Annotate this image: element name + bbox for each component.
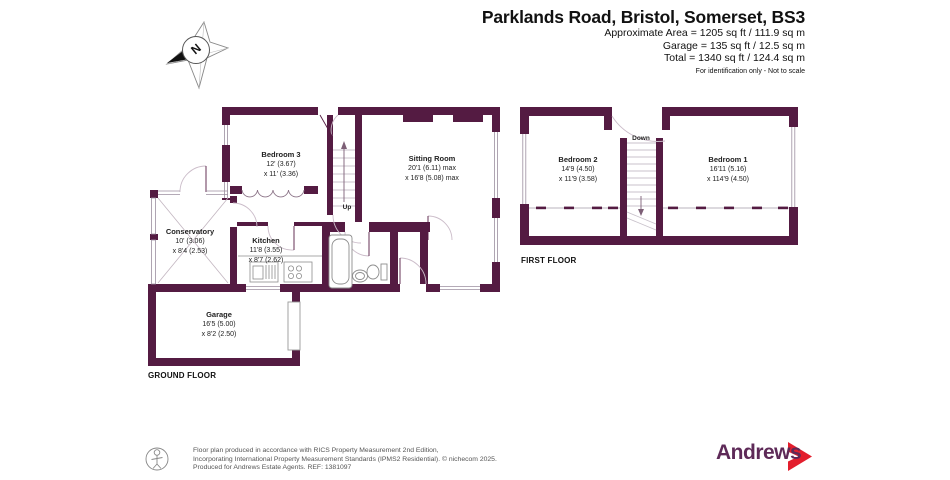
stairs-down-label: Down bbox=[626, 135, 656, 142]
room-name: Sitting Room bbox=[362, 154, 502, 164]
room-dim: 16'11 (5.16) bbox=[658, 165, 798, 175]
room-label-sitting-room: Sitting Room 20'1 (6.11) max x 16'8 (5.0… bbox=[362, 154, 502, 184]
room-label-garage: Garage 16'5 (5.00) x 8'2 (2.50) bbox=[149, 310, 289, 340]
footer-disclaimer: Floor plan produced in accordance with R… bbox=[193, 447, 497, 473]
approx-area-line: Approximate Area = 1205 sq ft / 111.9 sq… bbox=[482, 27, 805, 40]
room-dim: x 8'2 (2.50) bbox=[149, 330, 289, 340]
room-name: Garage bbox=[149, 310, 289, 320]
floor-plan-page: Parklands Road, Bristol, Somerset, BS3 A… bbox=[0, 0, 950, 480]
footer-line-3: Produced for Andrews Estate Agents. REF:… bbox=[193, 464, 497, 473]
surveyor-icon bbox=[146, 448, 168, 470]
room-dim: x 8'7 (2.62) bbox=[196, 256, 336, 266]
andrews-logo: Andrews bbox=[716, 441, 801, 465]
header: Parklands Road, Bristol, Somerset, BS3 A… bbox=[482, 7, 805, 75]
bay-window bbox=[242, 190, 304, 197]
page-title: Parklands Road, Bristol, Somerset, BS3 bbox=[482, 7, 805, 27]
room-dim: 12' (3.67) bbox=[211, 160, 351, 170]
room-dim: x 16'8 (5.08) max bbox=[362, 174, 502, 184]
room-dim: x 11' (3.36) bbox=[211, 170, 351, 180]
disclaimer: For identification only - Not to scale bbox=[482, 68, 805, 75]
first-floor-label: FIRST FLOOR bbox=[521, 256, 577, 265]
total-area-line: Total = 1340 sq ft / 124.4 sq m bbox=[482, 52, 805, 65]
room-dim: 16'5 (5.00) bbox=[149, 320, 289, 330]
garage-side-door bbox=[288, 302, 300, 350]
room-label-kitchen: Kitchen 11'8 (3.55) x 8'7 (2.62) bbox=[196, 236, 336, 266]
room-dim: 11'8 (3.55) bbox=[196, 246, 336, 256]
ground-floor-label: GROUND FLOOR bbox=[148, 371, 216, 380]
room-name: Bedroom 3 bbox=[211, 150, 351, 160]
room-name: Bedroom 2 bbox=[508, 155, 648, 165]
footer-line-2: Incorporating International Property Mea… bbox=[193, 456, 497, 465]
room-dim: x 11'9 (3.58) bbox=[508, 175, 648, 185]
room-dim: x 114'9 (4.50) bbox=[658, 175, 798, 185]
garage-area-line: Garage = 135 sq ft / 12.5 sq m bbox=[482, 40, 805, 53]
room-name: Bedroom 1 bbox=[658, 155, 798, 165]
room-name: Kitchen bbox=[196, 236, 336, 246]
room-dim: 14'9 (4.50) bbox=[508, 165, 648, 175]
stairs-up-label: Up bbox=[332, 204, 362, 211]
room-label-bedroom3: Bedroom 3 12' (3.67) x 11' (3.36) bbox=[211, 150, 351, 180]
room-label-bedroom2: Bedroom 2 14'9 (4.50) x 11'9 (3.58) bbox=[508, 155, 648, 185]
room-label-bedroom1: Bedroom 1 16'11 (5.16) x 114'9 (4.50) bbox=[658, 155, 798, 185]
footer-line-1: Floor plan produced in accordance with R… bbox=[193, 447, 497, 456]
room-dim: 20'1 (6.11) max bbox=[362, 164, 502, 174]
